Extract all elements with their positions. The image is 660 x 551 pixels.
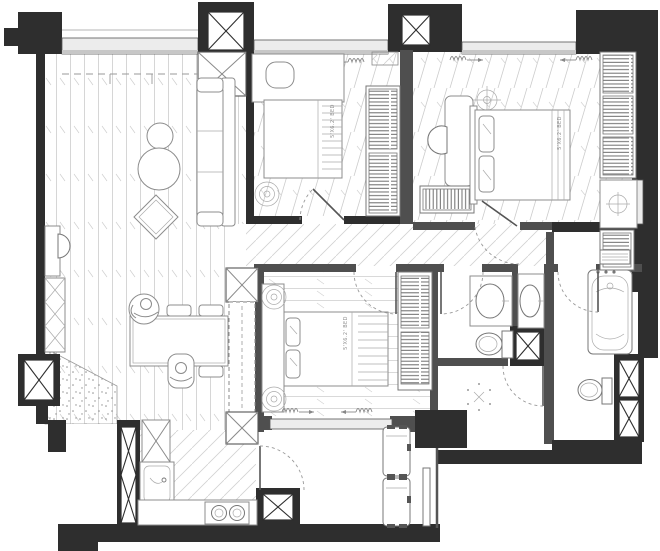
master-wardrobe bbox=[600, 52, 636, 178]
bed3-bed: 5'X6.2' BED bbox=[284, 312, 388, 386]
wall-left-lower bbox=[36, 404, 48, 424]
master-desk bbox=[445, 96, 473, 186]
master-bed-size-label: 5'X6.2' BED bbox=[557, 116, 563, 150]
living-window-sill bbox=[62, 50, 198, 54]
structural-mass-foyer bbox=[415, 410, 467, 448]
wall-bath-partition-2 bbox=[544, 272, 554, 444]
exterior-void bbox=[64, 424, 117, 530]
sofa bbox=[197, 78, 235, 226]
bedroom2-wardrobe bbox=[366, 86, 400, 216]
wall-master-bottom-a bbox=[413, 222, 475, 230]
bed2-size-label: 5'X6.2' BED bbox=[330, 104, 336, 138]
bedroom3-window bbox=[270, 419, 392, 429]
wall-bath-top-c bbox=[544, 264, 558, 272]
bedroom2-window-sill bbox=[254, 50, 388, 54]
toilet-icon bbox=[476, 331, 513, 358]
dining-chair bbox=[199, 366, 223, 377]
vanity-sink bbox=[470, 276, 512, 326]
bed3-size-label: 5'X6.2' BED bbox=[343, 316, 349, 350]
bathtub bbox=[588, 270, 632, 354]
bed2-pillow bbox=[266, 62, 294, 88]
refrigerator bbox=[142, 420, 170, 462]
wall-bath-partition-1 bbox=[512, 272, 518, 328]
coffee-table-large bbox=[138, 148, 180, 190]
floor-plan-canvas: 5'X6.2' BED bbox=[0, 0, 660, 551]
dining-chair bbox=[167, 305, 191, 316]
bed3-headboard bbox=[262, 284, 284, 412]
wall-bedroom2-master bbox=[400, 50, 413, 224]
wall-shower-bottom bbox=[436, 450, 554, 464]
master-window-sill bbox=[462, 50, 576, 54]
kitchen-door bbox=[260, 446, 304, 490]
wall-bedroom2-bottom-a bbox=[246, 216, 302, 224]
wall-master-bottom-b bbox=[520, 222, 552, 230]
wall-masterbath-bottom bbox=[552, 440, 642, 464]
wall-right-bath bbox=[638, 292, 658, 358]
dryer-machine bbox=[383, 476, 411, 528]
kitchen-tall-unit bbox=[121, 427, 136, 523]
grille-vent-icon bbox=[600, 250, 630, 264]
wall-bath-top-a bbox=[438, 264, 444, 272]
wall-left bbox=[36, 52, 45, 354]
sliding-panel bbox=[423, 468, 430, 526]
stove-cooktop bbox=[205, 502, 249, 524]
wall-bedroom3-top-a bbox=[254, 264, 356, 272]
bed2-bed: 5'X6.2' BED bbox=[264, 100, 342, 178]
pillow bbox=[286, 350, 300, 378]
hallway-floor bbox=[246, 224, 552, 266]
vanity-sink-2 bbox=[518, 274, 544, 328]
pillow bbox=[286, 318, 300, 346]
hall-cabinet-column bbox=[226, 268, 258, 444]
washing-machine bbox=[383, 425, 411, 478]
wall-corner-top-right bbox=[576, 10, 658, 54]
wall-bath-top-b bbox=[482, 264, 518, 272]
bedroom3-wardrobe bbox=[398, 272, 432, 390]
kitchen-sink bbox=[140, 462, 174, 506]
wall-stub-top-left bbox=[4, 28, 18, 46]
toilet-icon bbox=[578, 378, 612, 404]
wall-bedroom2-bottom-b bbox=[344, 216, 400, 224]
wall-corner-top-left bbox=[18, 12, 62, 54]
floor-plan-page: 5'X6.2' BED bbox=[0, 0, 660, 551]
wall-step-block bbox=[48, 420, 66, 452]
shower-area bbox=[467, 366, 543, 411]
master-bed: 5'X6.2' BED bbox=[470, 106, 570, 204]
dressing-table bbox=[600, 180, 637, 228]
wall-bottom-left-block bbox=[58, 524, 98, 551]
storage-cabinet-left bbox=[45, 278, 65, 352]
wall-shower bbox=[438, 358, 508, 366]
dining-chair bbox=[199, 305, 223, 316]
coffee-table-small bbox=[147, 123, 173, 149]
vent-box bbox=[372, 52, 398, 65]
pillow bbox=[479, 116, 494, 152]
armchair bbox=[168, 354, 194, 388]
master-dresser bbox=[420, 186, 474, 213]
